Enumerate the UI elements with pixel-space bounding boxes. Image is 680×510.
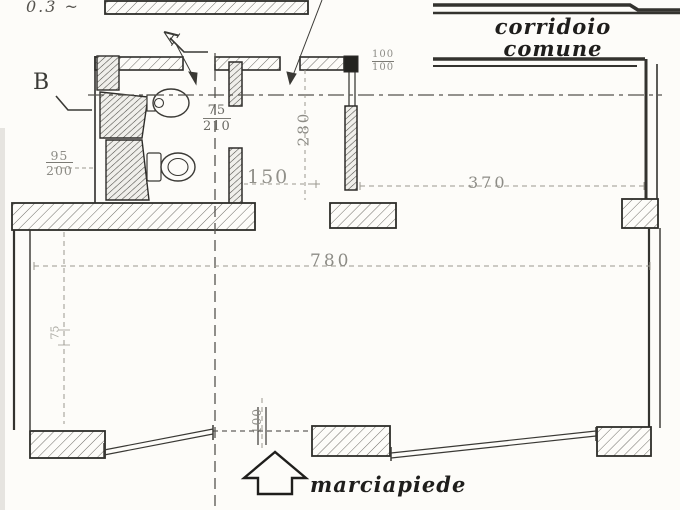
wall-top-left-stub: [105, 1, 308, 14]
dim-left-window-height: 200: [46, 162, 73, 177]
dim-top-window-height: 100: [372, 61, 394, 74]
dim-bath-passage: 150: [247, 166, 289, 188]
wall-bath-top: [95, 56, 358, 72]
toilet: [147, 153, 195, 181]
wall-bath-bottom-band: [12, 199, 658, 230]
dim-interior-door-width: 75: [203, 104, 231, 118]
sidewalk-arrow-icon: [244, 452, 306, 494]
top-left-fragment: 0.3 ~: [26, 0, 80, 16]
sidewalk-label: marciapiede: [310, 472, 466, 497]
sink: [147, 89, 189, 117]
wall-storefront-pillars: [30, 426, 651, 458]
dim-corridor-width: 370: [468, 173, 508, 192]
dim-storefront-width: 780: [310, 251, 351, 271]
dim-left-window-width: 95: [46, 149, 73, 162]
window-top: [349, 72, 355, 106]
dim-top-window-width: 100: [372, 50, 394, 61]
dim-interior-door: 75 210: [203, 104, 231, 133]
dim-left-side: 75: [49, 326, 62, 340]
corridor-label-line2: comune: [468, 38, 638, 60]
corridor-label-line1: corridoio: [468, 16, 638, 38]
dim-interior-door-height: 210: [203, 118, 231, 134]
scan-edge: [0, 128, 5, 510]
dim-bath-depth: 280: [294, 112, 312, 147]
section-marker-b: B: [33, 70, 49, 95]
wall-bath-right: [345, 106, 357, 190]
wall-left-piers: [95, 56, 149, 205]
dim-left-window: 95 200: [46, 149, 73, 177]
wall-corridor-upper: [433, 5, 680, 13]
wall-corridor-lower: [433, 59, 657, 200]
wall-interior-partition: [229, 62, 242, 205]
dim-entrance-door: 100: [250, 408, 264, 434]
floor-plan: corridoio comune marciapiede 0.3 ~ B A 3…: [0, 0, 680, 510]
corridor-label: corridoio comune: [468, 16, 638, 60]
dim-top-window: 100 100: [372, 50, 394, 73]
